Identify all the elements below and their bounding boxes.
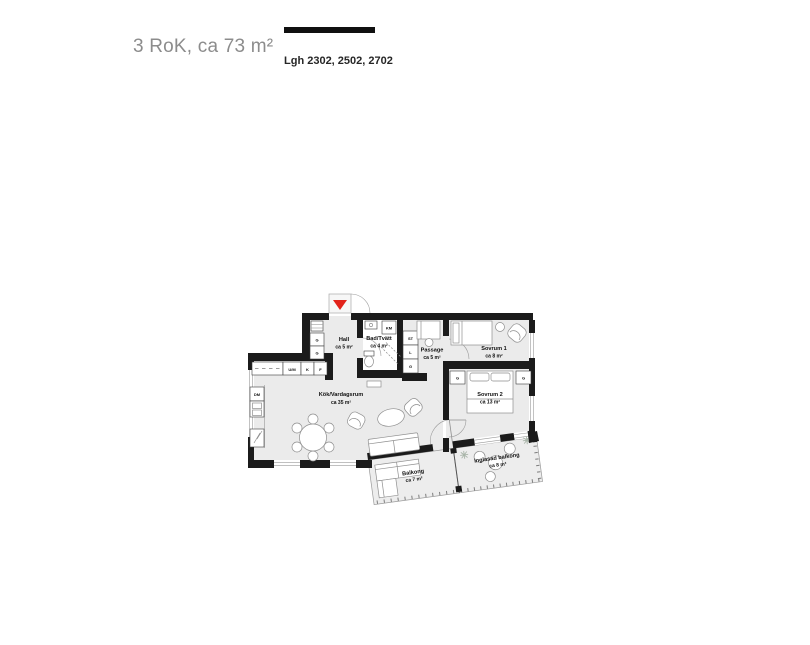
bedroom1-area: ca 8 m² xyxy=(485,354,503,360)
bedroom1-label: Sovrum 1 xyxy=(481,346,507,352)
hall-bench xyxy=(311,321,323,331)
desk-chair xyxy=(425,339,433,347)
floorplan-page: 3 RoK, ca 73 m² Lgh 2302, 2502, 2702 xyxy=(0,0,810,645)
passage-area: ca 5 m² xyxy=(423,355,441,361)
kitchen-sink xyxy=(250,401,264,417)
living-area: ca 35 m² xyxy=(331,400,351,406)
desk xyxy=(417,321,440,339)
floor-plan: Balkong ca 7 m² Inglasad balkong ca 8 m² xyxy=(240,282,560,520)
hall-area: ca 5 m² xyxy=(335,345,353,351)
bedroom1-furniture xyxy=(451,321,528,345)
entry-door xyxy=(329,294,370,313)
svg-text:G: G xyxy=(315,338,318,343)
bath-area: ca 4 m² xyxy=(370,344,388,350)
svg-text:KM: KM xyxy=(386,326,393,331)
bath-label: Bad/Tvätt xyxy=(366,336,392,342)
dining-table xyxy=(300,424,327,451)
bedroom2-area: ca 13 m² xyxy=(480,400,500,406)
hall-label: Hall xyxy=(339,337,350,343)
living-label: Kök/Vardagsrum xyxy=(319,392,363,398)
svg-text:U/M: U/M xyxy=(288,367,296,372)
apartment-numbers: Lgh 2302, 2502, 2702 xyxy=(284,55,393,67)
svg-text:ST: ST xyxy=(408,336,414,341)
sideboard xyxy=(367,381,381,387)
svg-text:G: G xyxy=(522,376,525,381)
toilet xyxy=(364,351,374,356)
closet-column: ST L G xyxy=(403,331,418,373)
passage-label: Passage xyxy=(421,348,444,354)
sink xyxy=(365,321,377,329)
page-title: 3 RoK, ca 73 m² xyxy=(133,36,273,58)
svg-text:G: G xyxy=(409,364,412,369)
side-table xyxy=(496,323,505,332)
svg-text:G: G xyxy=(456,376,459,381)
svg-text:DM: DM xyxy=(254,392,261,397)
hall-fixtures: G G xyxy=(310,321,324,359)
single-bed xyxy=(451,321,492,345)
bedroom2-label: Sovrum 2 xyxy=(477,392,503,398)
svg-text:K: K xyxy=(306,367,309,372)
svg-text:G: G xyxy=(315,351,318,356)
header-rule xyxy=(284,27,375,33)
